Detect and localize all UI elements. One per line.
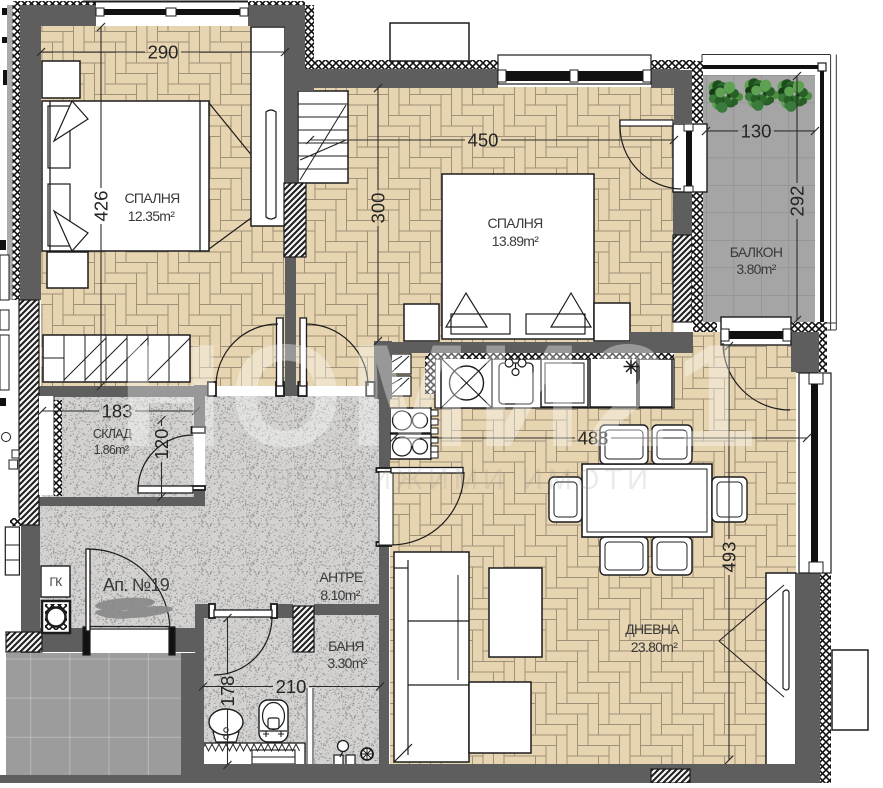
svg-text:13.89m²: 13.89m² <box>492 233 539 249</box>
svg-text:292: 292 <box>787 186 808 217</box>
svg-text:ДНЕВНА: ДНЕВНА <box>625 621 680 637</box>
svg-text:210: 210 <box>276 676 307 697</box>
svg-text:12.35m²: 12.35m² <box>128 208 175 224</box>
svg-text:НЕДВИЖИМИ ИМОТИ: НЕДВИЖИМИ ИМОТИ <box>271 464 653 496</box>
svg-text:Ап. №19: Ап. №19 <box>103 575 170 595</box>
svg-text:БАНЯ: БАНЯ <box>328 638 364 654</box>
svg-text:178: 178 <box>217 676 238 707</box>
svg-text:426: 426 <box>91 191 112 222</box>
svg-text:23.80m²: 23.80m² <box>631 639 678 655</box>
svg-text:СПАЛНЯ: СПАЛНЯ <box>124 190 179 206</box>
svg-text:СПАЛНЯ: СПАЛНЯ <box>487 215 542 231</box>
svg-text:130: 130 <box>741 121 772 142</box>
svg-text:3.30m²: 3.30m² <box>327 655 367 671</box>
svg-text:8.10m²: 8.10m² <box>320 587 360 603</box>
svg-text:290: 290 <box>148 42 179 63</box>
svg-text:450: 450 <box>468 130 499 151</box>
svg-text:АНТРЕ: АНТРЕ <box>319 569 363 585</box>
svg-text:493: 493 <box>719 542 740 573</box>
svg-text:300: 300 <box>368 193 389 224</box>
svg-text:3.80m²: 3.80m² <box>736 261 776 277</box>
svg-text:БАЛКОН: БАЛКОН <box>730 244 783 260</box>
svg-text:НОМИ21: НОМИ21 <box>118 314 762 477</box>
svg-text:ГК: ГК <box>49 575 62 589</box>
